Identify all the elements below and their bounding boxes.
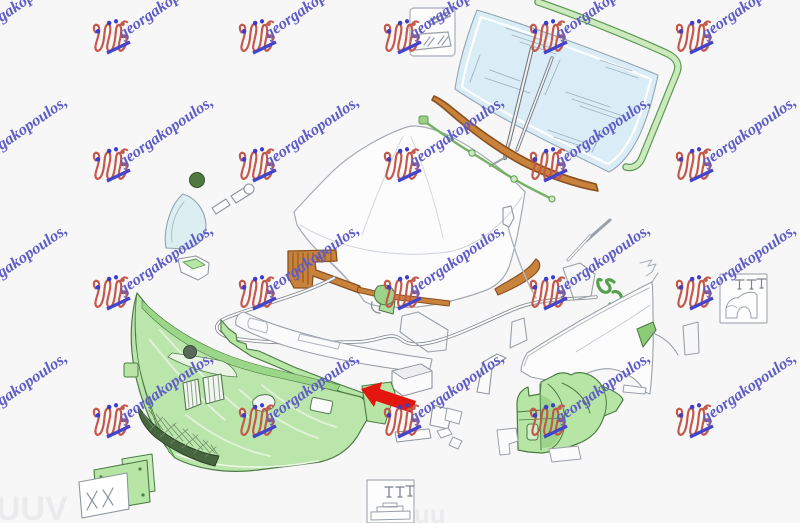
svg-text:UUV: UUV <box>0 490 68 523</box>
